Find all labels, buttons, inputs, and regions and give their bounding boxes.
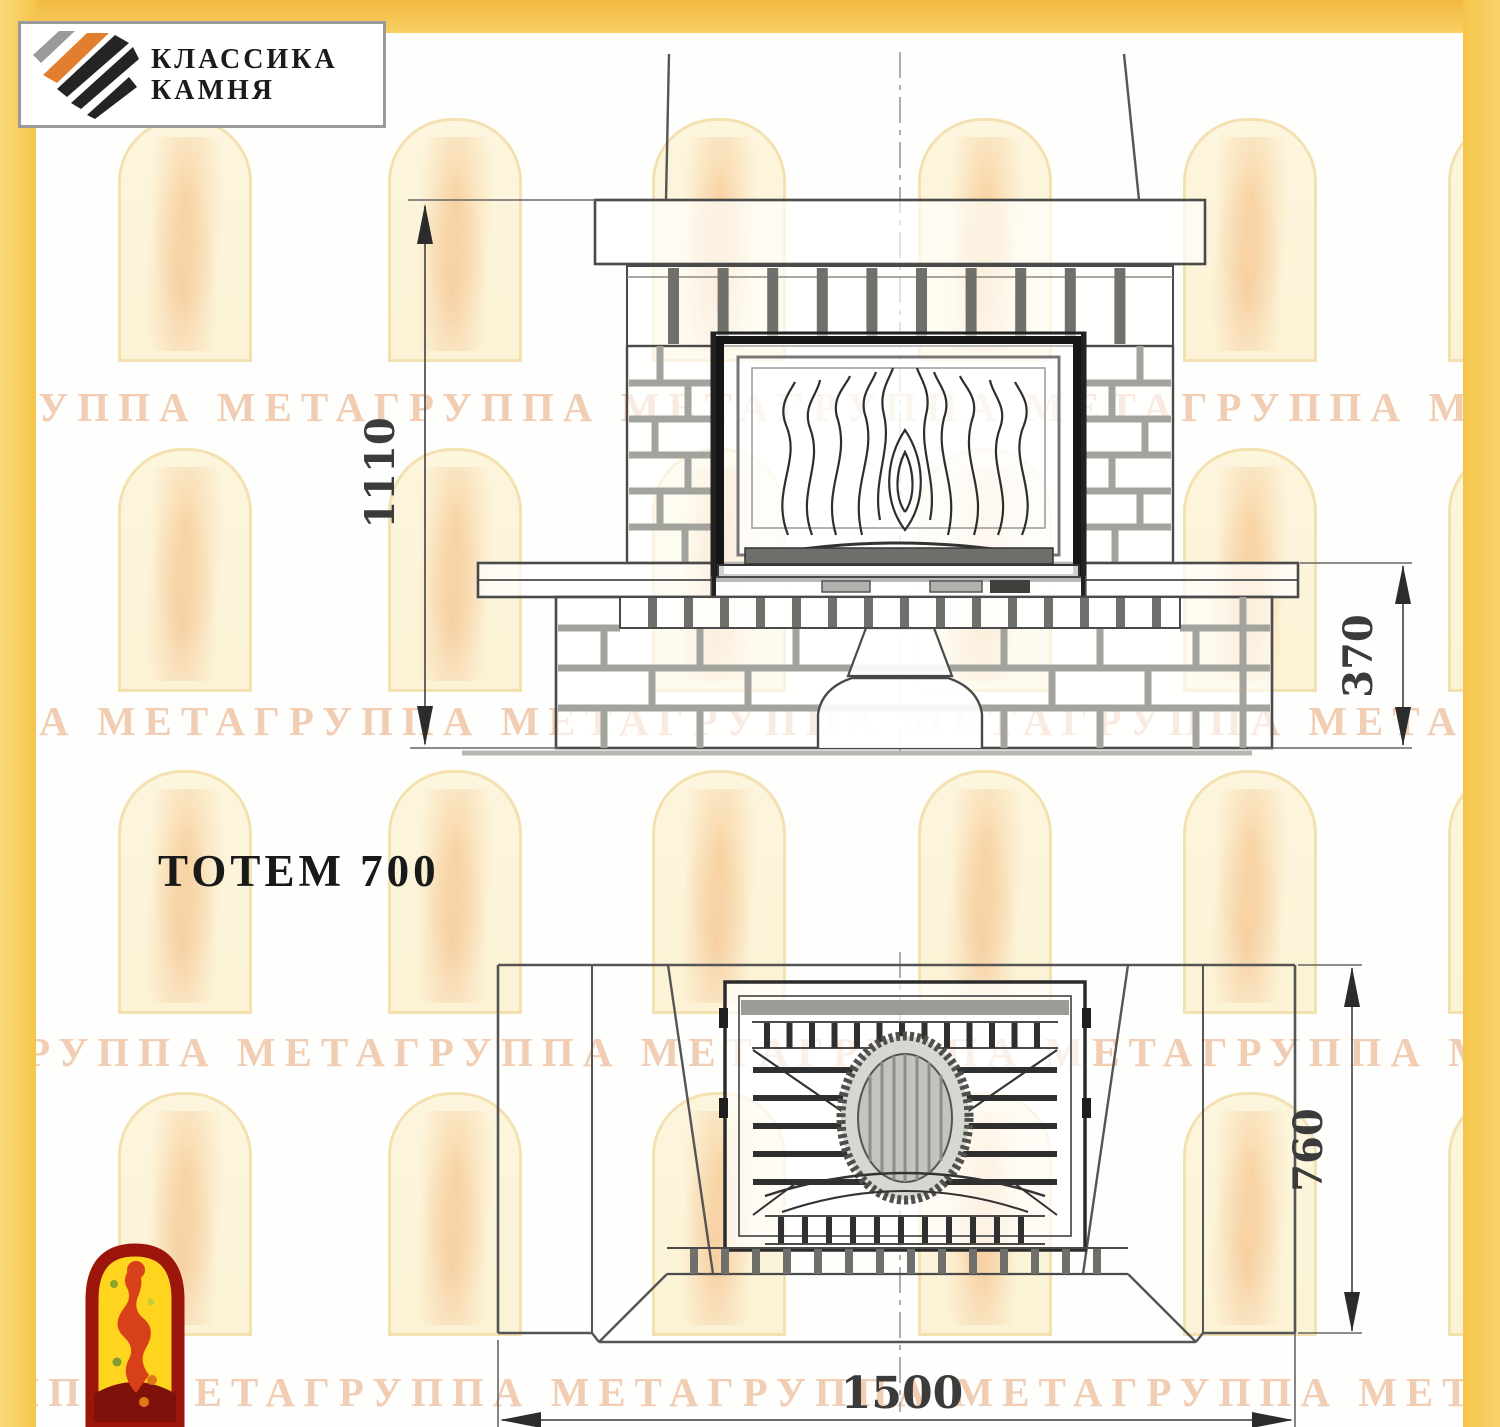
dim-label-plan-depth: 760 bbox=[1285, 1108, 1332, 1192]
brand-stripes-icon bbox=[31, 29, 143, 121]
brand-name-line2: КАМНЯ bbox=[151, 75, 338, 106]
keystone bbox=[848, 628, 952, 676]
brick-column-left bbox=[627, 346, 718, 563]
ornament-logo bbox=[84, 1242, 186, 1427]
arch-figure-icon bbox=[84, 1242, 186, 1427]
page: ГРУППА МЕТАГРУППА МЕТАГРУППА МЕТАГРУППА … bbox=[0, 0, 1500, 1427]
brick-column-right bbox=[1082, 346, 1173, 563]
brand-logo: КЛАССИКА КАМНЯ bbox=[18, 21, 386, 128]
fireplace-technical-drawing: 1110 370 bbox=[0, 0, 1500, 1427]
dim-label-front-height: 1110 bbox=[357, 417, 404, 528]
dim-label-front-base-height: 370 bbox=[1335, 614, 1382, 698]
front-elevation-view: 1110 370 bbox=[357, 52, 1412, 756]
chimney-left-line bbox=[666, 54, 669, 200]
brand-name-line1: КЛАССИКА bbox=[151, 44, 338, 75]
dim-label-plan-width: 1500 bbox=[841, 1368, 963, 1419]
dentil-ticks-mid bbox=[648, 598, 1161, 627]
base-arch-opening bbox=[818, 678, 982, 748]
plan-dentil-ticks bbox=[690, 1249, 1101, 1274]
model-title: ТОТЕМ 700 bbox=[158, 845, 440, 897]
mantel-shelf bbox=[595, 200, 1205, 264]
firebox-insert bbox=[712, 333, 1085, 597]
frame-band-left bbox=[0, 0, 36, 1427]
plan-hearth-trapezoid bbox=[592, 1274, 1203, 1342]
plan-firebox-insert bbox=[719, 982, 1091, 1250]
chimney-right-line bbox=[1124, 54, 1139, 200]
plan-view: 760 1500 bbox=[498, 952, 1362, 1427]
frame-band-right bbox=[1463, 0, 1500, 1427]
